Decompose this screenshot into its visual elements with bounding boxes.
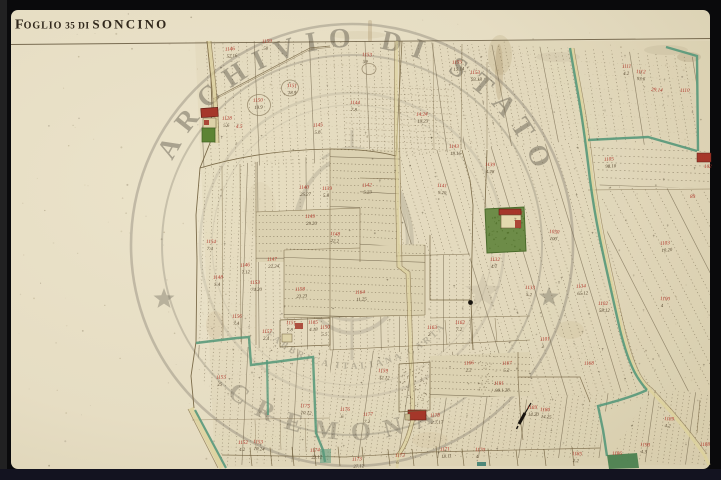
svg-text:10.24: 10.24 xyxy=(254,447,266,453)
svg-text:1153: 1153 xyxy=(470,70,480,76)
svg-text:1170: 1170 xyxy=(475,447,486,453)
svg-text:1185: 1185 xyxy=(572,451,583,457)
svg-text:1164: 1164 xyxy=(355,288,366,296)
svg-text:10.11: 10.11 xyxy=(441,454,452,460)
svg-text:5.8: 5.8 xyxy=(323,194,330,199)
svg-text:7.4: 7.4 xyxy=(207,247,214,252)
svg-text:1150: 1150 xyxy=(253,97,264,104)
svg-text:1134: 1134 xyxy=(576,282,587,290)
svg-text:1159: 1159 xyxy=(262,38,273,45)
svg-text:1128: 1128 xyxy=(222,115,233,122)
svg-text:1165: 1165 xyxy=(308,320,319,326)
svg-text:1142: 1142 xyxy=(362,181,373,189)
svg-text:10.20: 10.20 xyxy=(661,248,673,254)
svg-text:1139: 1139 xyxy=(485,162,495,168)
svg-text:7.8: 7.8 xyxy=(351,108,358,113)
svg-text:1178: 1178 xyxy=(430,413,441,419)
svg-text:1169: 1169 xyxy=(527,405,537,411)
svg-text:89: 89 xyxy=(690,194,696,200)
svg-text:1146: 1146 xyxy=(224,45,235,53)
svg-text:1190: 1190 xyxy=(640,442,651,449)
svg-text:27.12: 27.12 xyxy=(353,464,365,470)
svg-text:4.2: 4.2 xyxy=(239,448,246,453)
svg-text:1145: 1145 xyxy=(313,121,324,129)
svg-text:1140: 1140 xyxy=(299,184,310,191)
svg-text:1132: 1132 xyxy=(490,257,500,263)
svg-text:102: 102 xyxy=(704,164,712,170)
svg-text:1177: 1177 xyxy=(363,412,373,418)
svg-text:1186: 1186 xyxy=(612,451,622,457)
svg-text:19.9: 19.9 xyxy=(254,105,263,110)
svg-text:93.6: 93.6 xyxy=(637,77,646,82)
svg-text:1104: 1104 xyxy=(700,154,711,161)
svg-text:1175: 1175 xyxy=(300,403,311,410)
svg-text:4.28: 4.28 xyxy=(486,170,495,175)
svg-text:1105: 1105 xyxy=(604,156,615,163)
svg-text:4.2: 4.2 xyxy=(664,424,671,429)
svg-text:14.25: 14.25 xyxy=(541,415,553,420)
svg-text:74.20: 74.20 xyxy=(251,288,262,293)
svg-text:1180: 1180 xyxy=(540,407,551,413)
svg-text:22.2: 22.2 xyxy=(330,239,339,245)
svg-text:1176: 1176 xyxy=(340,407,350,413)
svg-text:10.12: 10.12 xyxy=(301,411,313,417)
svg-text:65.12: 65.12 xyxy=(577,291,589,297)
svg-text:93.18: 93.18 xyxy=(471,78,482,83)
svg-text:1151: 1151 xyxy=(287,83,297,89)
svg-text:1153: 1153 xyxy=(362,52,373,58)
svg-text:29.14: 29.14 xyxy=(651,86,664,94)
svg-text:1153: 1153 xyxy=(253,439,264,446)
svg-text:1171: 1171 xyxy=(440,446,451,453)
svg-text:100: 100 xyxy=(550,237,558,242)
svg-text:5.23: 5.23 xyxy=(363,190,372,196)
svg-text:1188: 1188 xyxy=(700,442,710,448)
svg-text:4.3: 4.3 xyxy=(641,450,648,455)
svg-text:1156: 1156 xyxy=(232,314,243,320)
svg-text:1154: 1154 xyxy=(206,238,217,245)
svg-text:2.7.17: 2.7.17 xyxy=(431,421,444,426)
svg-text:1030: 1030 xyxy=(549,229,560,236)
svg-text:1153: 1153 xyxy=(216,374,227,381)
svg-text:1131: 1131 xyxy=(513,210,524,216)
svg-text:5.5: 5.5 xyxy=(321,332,328,337)
svg-text:32.12: 32.12 xyxy=(379,376,391,381)
svg-text:1162: 1162 xyxy=(455,320,465,326)
svg-text:1151: 1151 xyxy=(286,320,297,326)
svg-text:5.6: 5.6 xyxy=(223,124,230,129)
svg-text:5.2: 5.2 xyxy=(503,368,510,373)
svg-text:1153: 1153 xyxy=(250,280,260,286)
svg-text:1167: 1167 xyxy=(502,360,513,367)
svg-text:14.24: 14.24 xyxy=(416,111,428,118)
svg-text:1139: 1139 xyxy=(322,186,332,192)
svg-text:5.2: 5.2 xyxy=(526,293,533,298)
svg-text:1159: 1159 xyxy=(378,368,389,374)
svg-text:23.12: 23.12 xyxy=(311,455,323,461)
svg-text:1143: 1143 xyxy=(449,143,460,150)
svg-text:1111: 1111 xyxy=(622,64,632,70)
svg-text:4.18: 4.18 xyxy=(309,328,318,333)
svg-text:1102: 1102 xyxy=(598,301,608,307)
svg-text:1144: 1144 xyxy=(350,99,361,106)
svg-text:14.20: 14.20 xyxy=(528,413,539,418)
svg-text:2.2: 2.2 xyxy=(465,368,472,374)
svg-text:1147: 1147 xyxy=(267,256,278,263)
svg-text:15.14: 15.14 xyxy=(453,67,465,73)
svg-text:1146: 1146 xyxy=(240,261,251,269)
svg-text:18.16: 18.16 xyxy=(450,152,461,157)
svg-text:11.25: 11.25 xyxy=(356,297,367,303)
svg-text:1189: 1189 xyxy=(664,416,675,423)
svg-text:58.12: 58.12 xyxy=(599,309,610,314)
svg-text:7.12: 7.12 xyxy=(241,270,250,276)
svg-text:1148: 1148 xyxy=(330,230,341,238)
svg-text:98.10: 98.10 xyxy=(605,164,617,170)
svg-text:9.20: 9.20 xyxy=(438,191,447,196)
svg-text:1157: 1157 xyxy=(262,329,272,335)
svg-text:1155: 1155 xyxy=(452,59,463,66)
svg-text:5.4: 5.4 xyxy=(214,283,221,288)
svg-text:1172: 1172 xyxy=(395,452,406,459)
svg-text:7.8: 7.8 xyxy=(287,328,294,333)
svg-text:2.4: 2.4 xyxy=(263,337,270,342)
svg-text:1173: 1173 xyxy=(352,456,363,463)
svg-text:1191: 1191 xyxy=(494,381,505,387)
svg-text:1148: 1148 xyxy=(213,274,224,281)
svg-text:1152: 1152 xyxy=(238,440,248,446)
svg-text:1166: 1166 xyxy=(464,360,475,367)
svg-text:1133: 1133 xyxy=(525,285,535,291)
svg-text:25.27: 25.27 xyxy=(300,193,312,198)
svg-text:7.2: 7.2 xyxy=(456,328,463,333)
svg-text:1100: 1100 xyxy=(660,296,671,302)
svg-text:5.8: 5.8 xyxy=(314,130,321,136)
svg-text:1110: 1110 xyxy=(680,88,690,94)
svg-text:4.2: 4.2 xyxy=(623,72,630,77)
svg-text:23.23: 23.23 xyxy=(296,294,308,300)
svg-text:1149: 1149 xyxy=(305,213,316,220)
svg-text:19.23: 19.23 xyxy=(417,120,429,125)
svg-text:7.4: 7.4 xyxy=(233,322,240,327)
svg-text:1158: 1158 xyxy=(295,286,306,293)
svg-text:98.1.28: 98.1.28 xyxy=(495,388,510,394)
svg-text:1174: 1174 xyxy=(310,446,321,454)
svg-text:1150: 1150 xyxy=(320,324,331,331)
svg-text:59: 59 xyxy=(363,60,369,65)
svg-text:22.24: 22.24 xyxy=(268,265,280,270)
svg-text:4.5: 4.5 xyxy=(236,123,243,130)
svg-text:1168: 1168 xyxy=(584,360,595,367)
svg-text:7.2: 7.2 xyxy=(364,420,371,425)
svg-text:1141: 1141 xyxy=(437,182,448,189)
svg-text:18.9: 18.9 xyxy=(288,91,297,96)
svg-text:1112: 1112 xyxy=(636,69,646,75)
svg-text:1163: 1163 xyxy=(427,325,437,331)
svg-text:1101: 1101 xyxy=(540,336,551,343)
svg-text:1103: 1103 xyxy=(660,240,671,247)
svg-text:29.20: 29.20 xyxy=(306,222,317,227)
svg-text:2.2: 2.2 xyxy=(573,459,580,464)
